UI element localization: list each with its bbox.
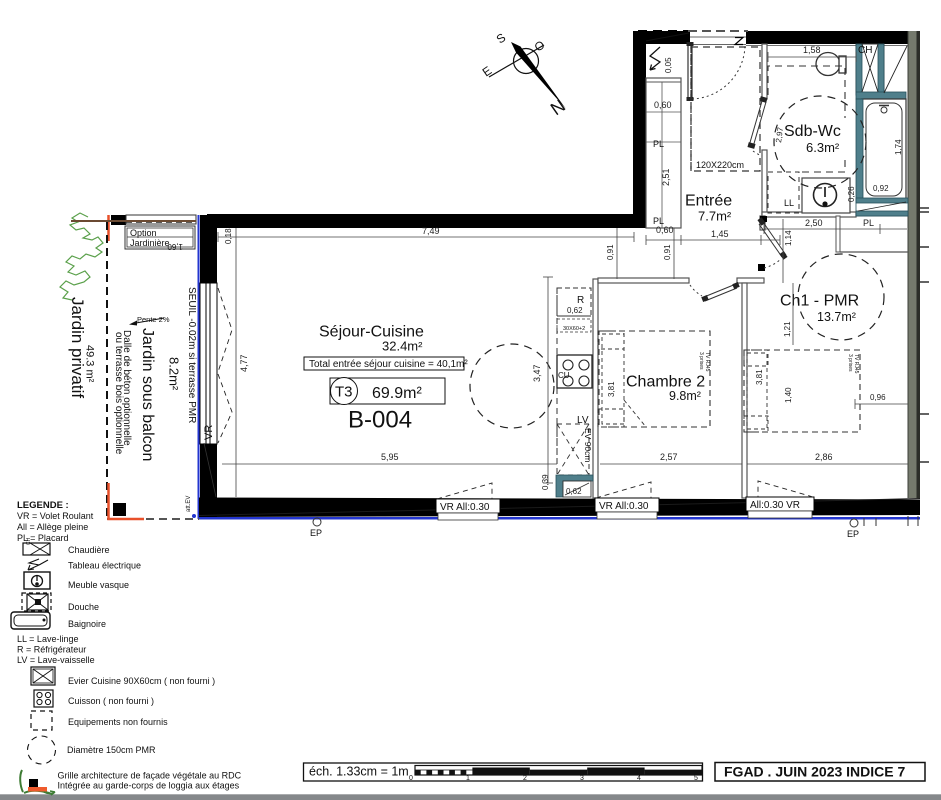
svg-text:LEGENDE :: LEGENDE :	[17, 500, 69, 511]
svg-text:R: R	[577, 295, 584, 306]
svg-text:EP: EP	[847, 529, 859, 539]
svg-text:Equipements non fournis: Equipements non fournis	[68, 717, 168, 727]
svg-text:0,60: 0,60	[656, 225, 674, 235]
svg-text:0,05: 0,05	[664, 57, 673, 73]
svg-text:3,81: 3,81	[755, 369, 764, 385]
svg-text:LL = Lave-linge: LL = Lave-linge	[17, 634, 78, 644]
svg-text:R = Réfrigérateur: R = Réfrigérateur	[17, 645, 86, 655]
svg-text:Diamètre 150cm PMR: Diamètre 150cm PMR	[67, 745, 156, 755]
svg-text:2: 2	[523, 775, 527, 782]
svg-text:VR All:0.30: VR All:0.30	[440, 502, 490, 513]
svg-text:CH: CH	[26, 537, 32, 545]
svg-text:Chaudière: Chaudière	[68, 545, 110, 555]
svg-text:30X60+2: 30X60+2	[563, 326, 585, 332]
svg-text:B-004: B-004	[348, 407, 412, 434]
svg-text:EV 90cm: EV 90cm	[583, 428, 593, 463]
svg-text:Tableau électrique: Tableau électrique	[68, 561, 141, 571]
svg-text:3 prises: 3 prises	[847, 354, 853, 372]
svg-text:VR: VR	[203, 425, 215, 440]
svg-text:éch. 1.33cm = 1m: éch. 1.33cm = 1m	[309, 765, 409, 779]
svg-text:0,91: 0,91	[606, 244, 615, 260]
svg-text:Chambre 2: Chambre 2	[626, 374, 705, 391]
svg-text:Baignoire: Baignoire	[68, 619, 106, 629]
svg-text:4,77: 4,77	[239, 354, 249, 372]
svg-text:0,39: 0,39	[541, 474, 550, 490]
svg-text:TV RJ45: TV RJ45	[704, 352, 710, 372]
svg-text:Douche: Douche	[68, 602, 99, 612]
svg-text:1,74: 1,74	[894, 139, 903, 155]
svg-text:0,18: 0,18	[224, 228, 233, 244]
svg-text:2,57: 2,57	[660, 452, 678, 462]
svg-text:Total entrée séjour cuisine =: Total entrée séjour cuisine = 40,1m²	[309, 359, 468, 370]
svg-text:49.3 m²: 49.3 m²	[84, 345, 96, 383]
svg-text:Cuisson ( non fourni ): Cuisson ( non fourni )	[68, 696, 154, 706]
svg-text:0,91: 0,91	[663, 244, 672, 260]
svg-text:5: 5	[694, 775, 698, 782]
svg-text:32.4m²: 32.4m²	[382, 339, 423, 354]
svg-text:1,58: 1,58	[803, 45, 821, 55]
svg-text:Jardin sous balcon: Jardin sous balcon	[139, 328, 156, 461]
svg-text:LV = Lave-vaisselle: LV = Lave-vaisselle	[17, 655, 95, 665]
svg-text:3,47: 3,47	[532, 364, 542, 382]
svg-text:PL: PL	[653, 139, 664, 149]
svg-text:LL: LL	[784, 198, 794, 208]
svg-text:9.8m²: 9.8m²	[669, 389, 701, 403]
svg-text:0,92: 0,92	[873, 184, 889, 193]
svg-text:1,21: 1,21	[783, 321, 792, 337]
svg-text:3,81: 3,81	[607, 381, 616, 397]
svg-text:1,45: 1,45	[711, 229, 729, 239]
svg-text:0,60: 0,60	[654, 100, 672, 110]
svg-text:CU: CU	[558, 371, 570, 380]
svg-text:5,95: 5,95	[381, 452, 399, 462]
svg-text:0,62: 0,62	[567, 306, 583, 315]
svg-text:8.2m²: 8.2m²	[167, 357, 182, 391]
svg-text:Intégrée au garde-corps de log: Intégrée au garde-corps de loggia aux ét…	[58, 781, 240, 791]
svg-text:69.9m²: 69.9m²	[372, 385, 422, 402]
svg-text:1,40: 1,40	[784, 387, 793, 403]
svg-text:SEUIL -0.02m si terrasse PMR: SEUIL -0.02m si terrasse PMR	[186, 287, 197, 423]
svg-text:PL: PL	[863, 218, 874, 228]
svg-text:2,51: 2,51	[661, 168, 671, 186]
svg-text:2,50: 2,50	[805, 218, 823, 228]
svg-text:Option: Option	[130, 228, 157, 238]
svg-text:7,49: 7,49	[422, 226, 440, 236]
svg-text:1: 1	[466, 775, 470, 782]
svg-text:FGAD . JUIN 2023 INDICE 7: FGAD . JUIN 2023 INDICE 7	[724, 764, 905, 780]
svg-text:CH: CH	[858, 45, 872, 56]
svg-text:Entrée: Entrée	[685, 193, 732, 210]
svg-text:4: 4	[637, 775, 641, 782]
svg-text:Evier Cuisine 90X60cm ( non fo: Evier Cuisine 90X60cm ( non fourni )	[68, 676, 215, 686]
svg-text:EP: EP	[310, 528, 322, 538]
svg-text:6.3m²: 6.3m²	[806, 140, 840, 155]
svg-text:1,60: 1,60	[167, 242, 183, 251]
svg-text:TV RJ45: TV RJ45	[853, 354, 859, 374]
svg-text:Grille architecture de façade: Grille architecture de façade végétale a…	[58, 771, 242, 781]
svg-text:120X220cm: 120X220cm	[696, 160, 744, 170]
svg-text:VR = Volet Roulant: VR = Volet Roulant	[17, 511, 94, 521]
svg-text:7.7m²: 7.7m²	[698, 209, 732, 224]
svg-text:0,96: 0,96	[870, 393, 886, 402]
svg-text:Ch1 - PMR: Ch1 - PMR	[780, 293, 859, 310]
svg-text:Sdb-Wc: Sdb-Wc	[784, 123, 841, 140]
svg-text:PL = Placard: PL = Placard	[17, 533, 68, 543]
svg-text:att.EV: att.EV	[186, 496, 192, 512]
svg-text:0: 0	[409, 775, 413, 782]
svg-text:13.7m²: 13.7m²	[817, 310, 856, 324]
svg-text:Jardinière: Jardinière	[130, 238, 170, 248]
svg-text:0,62: 0,62	[566, 487, 582, 496]
svg-text:T3: T3	[335, 384, 353, 401]
svg-text:Meuble vasque: Meuble vasque	[68, 580, 129, 590]
svg-text:All:0.30 VR: All:0.30 VR	[750, 500, 800, 511]
svg-text:ou terrasse bois optionnelle: ou terrasse bois optionnelle	[113, 332, 124, 455]
svg-text:3 prises: 3 prises	[698, 352, 704, 370]
svg-text:3: 3	[580, 775, 584, 782]
svg-text:All = Allège pleine: All = Allège pleine	[17, 522, 88, 532]
svg-text:VR All:0.30: VR All:0.30	[599, 501, 649, 512]
svg-text:0,26: 0,26	[847, 186, 856, 202]
svg-text:2,86: 2,86	[815, 452, 833, 462]
svg-text:1,14: 1,14	[784, 230, 793, 246]
